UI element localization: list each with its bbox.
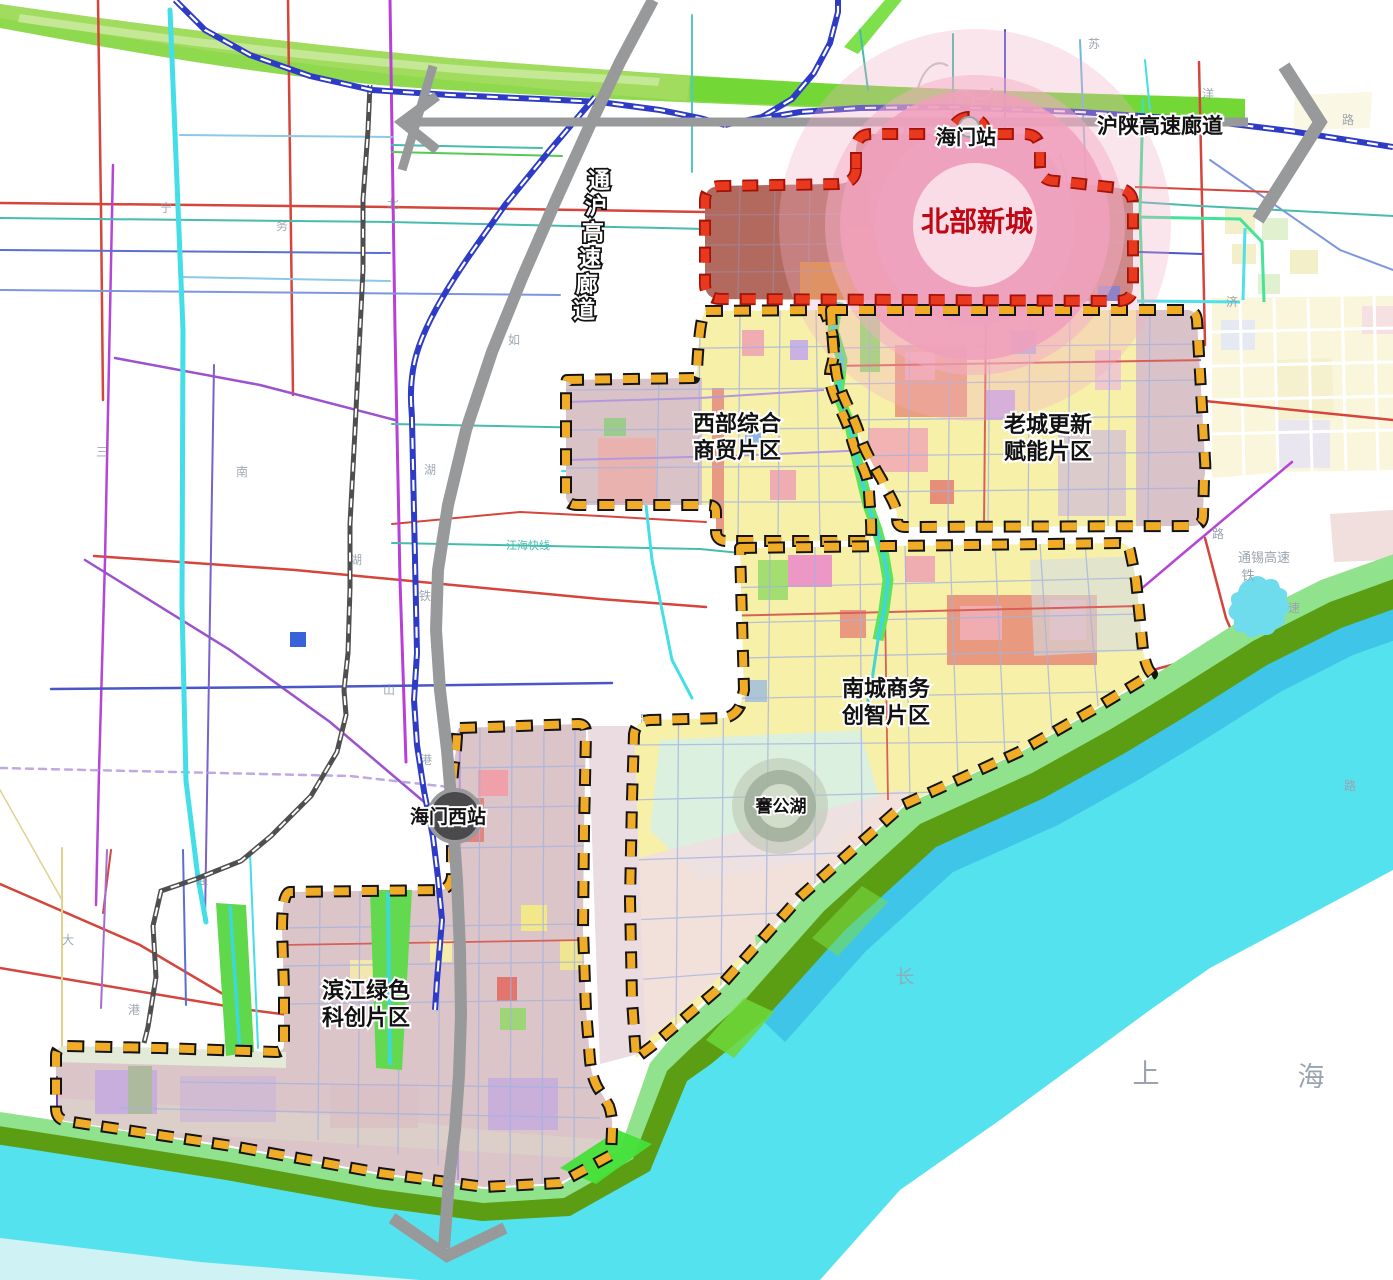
svg-text:上: 上: [1133, 1059, 1160, 1089]
svg-text:商贸片区: 商贸片区: [693, 438, 781, 463]
svg-text:通: 通: [588, 168, 610, 193]
svg-text:南: 南: [236, 464, 248, 479]
svg-text:老城更新: 老城更新: [1003, 412, 1092, 437]
svg-text:速: 速: [1288, 601, 1300, 615]
svg-text:赋能片区: 赋能片区: [1004, 439, 1092, 464]
svg-text:长: 长: [895, 966, 914, 988]
svg-text:北: 北: [387, 197, 399, 211]
svg-text:速: 速: [579, 246, 601, 271]
svg-text:港: 港: [128, 1003, 140, 1017]
svg-text:北部新城: 北部新城: [921, 206, 1033, 237]
svg-text:三: 三: [96, 445, 108, 459]
svg-text:山: 山: [383, 683, 395, 697]
svg-text:路: 路: [1342, 112, 1354, 127]
svg-text:创智片区: 创智片区: [841, 703, 930, 728]
svg-text:科创片区: 科创片区: [322, 1005, 410, 1030]
svg-text:海: 海: [1298, 1062, 1325, 1092]
svg-text:江海快线: 江海快线: [506, 538, 550, 552]
svg-text:大: 大: [62, 933, 74, 947]
svg-text:务: 务: [276, 218, 288, 233]
svg-text:謇公湖: 謇公湖: [756, 796, 807, 816]
svg-text:高: 高: [582, 220, 604, 245]
svg-text:沪: 沪: [585, 194, 607, 219]
svg-text:廊: 廊: [576, 272, 598, 297]
svg-text:海门站: 海门站: [936, 125, 996, 149]
svg-text:通锡高速: 通锡高速: [1238, 550, 1290, 565]
svg-text:西部综合: 西部综合: [693, 411, 782, 436]
svg-text:洋: 洋: [1202, 86, 1214, 101]
svg-text:宁: 宁: [160, 200, 172, 215]
svg-text:路: 路: [1344, 778, 1356, 793]
svg-text:湖: 湖: [424, 462, 436, 477]
svg-text:苏: 苏: [1088, 37, 1100, 51]
svg-text:道: 道: [573, 298, 595, 323]
svg-text:路: 路: [1212, 526, 1224, 541]
svg-text:沪陕高速廊道: 沪陕高速廊道: [1097, 114, 1223, 138]
svg-text:铁: 铁: [419, 589, 431, 603]
svg-text:铁: 铁: [1241, 568, 1254, 583]
svg-text:南城商务: 南城商务: [842, 676, 931, 701]
svg-text:滨江绿色: 滨江绿色: [322, 978, 410, 1003]
svg-text:海门西站: 海门西站: [410, 805, 486, 828]
svg-text:如: 如: [508, 332, 520, 347]
svg-text:济: 济: [1226, 294, 1238, 309]
